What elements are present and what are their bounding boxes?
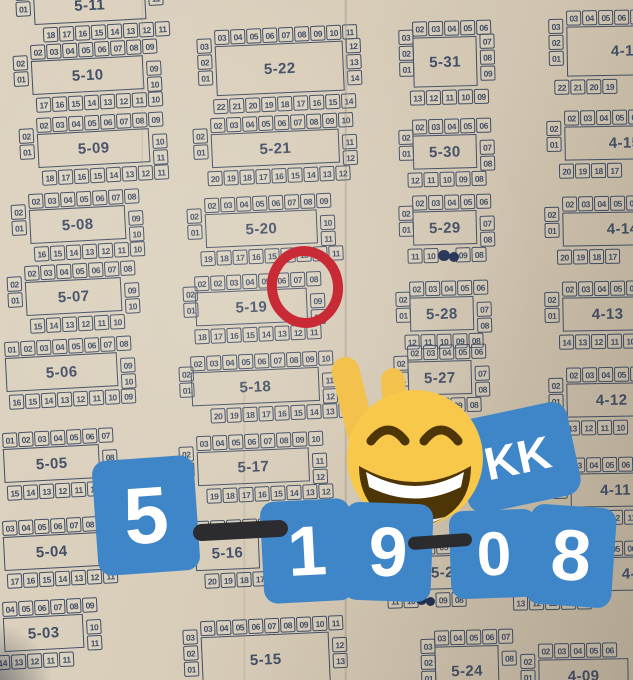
seat-cell: 12 (27, 653, 43, 669)
seat-cell: 12 (73, 391, 89, 407)
seat-cell: 10 (623, 333, 633, 348)
seat-cell: 18 (194, 329, 210, 345)
seat-block-outline: 5-10 (31, 55, 145, 95)
seat-cell: 08 (280, 617, 296, 633)
seat-block-outline: 4-15 (564, 125, 633, 161)
seat-cell: 08 (66, 598, 82, 614)
seat-cell: 10 (320, 215, 336, 231)
seat-cell: 05 (466, 629, 481, 644)
seat-cell: 20 (557, 250, 572, 265)
seat-cell: 14 (286, 485, 302, 501)
seat-cell: 05 (460, 118, 475, 133)
seat-block-label: 5-21 (259, 139, 291, 157)
seat-cell: 06 (476, 194, 491, 209)
seat-cell: 02 (566, 367, 581, 382)
seat-block-label: 5-03 (27, 624, 59, 643)
seat-cell: 17 (59, 26, 75, 42)
seat-cell: 01 (544, 223, 559, 238)
seat-cell: 14 (41, 392, 57, 408)
seat-cell: 16 (23, 572, 39, 588)
seat-cell: 01 (544, 308, 559, 323)
seat-cell: 09 (435, 592, 450, 607)
seat-cell: 13 (123, 23, 139, 39)
seat-cell: 03 (420, 639, 435, 654)
seat-cell: 11 (153, 149, 169, 165)
seat-block-outline: 5-04 (3, 532, 101, 571)
seat-cell: 08 (286, 352, 302, 368)
seat-block-outline: 4-13 (562, 296, 633, 332)
seat-cell: 04 (582, 10, 597, 25)
seat-cell: 08 (480, 231, 495, 246)
seat-cell: 12 (402, 398, 417, 413)
seat-block-label: 5-30 (429, 143, 461, 161)
seat-cell: 02 (210, 275, 226, 291)
seat-cell: 03 (582, 367, 597, 382)
seat-cell: 06 (624, 540, 633, 555)
seat-cell: 09 (146, 60, 162, 76)
seat-cell: 13 (302, 484, 318, 500)
seat-cell: 09 (292, 431, 308, 447)
seat-block-label: 5-20 (245, 220, 277, 238)
seat-cell: 05 (66, 429, 82, 445)
seat-block-label: 5-08 (61, 215, 93, 234)
seat-cell: 08 (294, 26, 310, 42)
seat-cell: 17 (238, 487, 254, 503)
seat-cell: 09 (296, 616, 312, 632)
seat-block-label: 5-07 (57, 287, 89, 306)
seat-cell: 14 (107, 23, 123, 39)
seat-cell: 11 (155, 21, 171, 37)
seat-cell: 19 (602, 79, 617, 94)
seat-cell: 08 (480, 155, 495, 170)
seat-cell: 08 (126, 39, 142, 55)
seat-cell: 05 (84, 115, 100, 131)
seat-block-label: 4-10 (622, 565, 633, 583)
seat-cell: 06 (471, 344, 486, 359)
pen-mark-dot (426, 597, 435, 606)
seat-cell: 12 (338, 402, 354, 418)
seat-cell: 09 (450, 397, 465, 412)
seat-cell: 10 (148, 91, 164, 107)
seat-cell: 02 (412, 119, 427, 134)
seat-cell: 11 (94, 315, 110, 331)
seat-cell: 18 (277, 96, 293, 112)
seat-cell: 05 (18, 600, 34, 616)
seat-cell: 07 (290, 272, 306, 288)
seat-cell: 03 (206, 355, 222, 371)
seat-cell: 06 (34, 600, 50, 616)
seat-cell: 09 (474, 89, 489, 104)
seat-cell: 11 (607, 334, 622, 349)
seat-block-label: 5-31 (429, 53, 461, 71)
seat-cell: 01 (15, 1, 31, 17)
seat-cell: 10 (326, 25, 342, 41)
seat-cell: 20 (204, 573, 220, 589)
seat-block-outline: 5-06 (5, 352, 119, 392)
seat-cell: 12 (335, 165, 351, 181)
seat-cell: 07 (104, 261, 120, 277)
seat-cell: 17 (293, 95, 309, 111)
seat-cell: 02 (407, 345, 422, 360)
seat-cell: 07 (480, 139, 495, 154)
seat-cell: 14 (306, 404, 322, 420)
seat-cell: 13 (274, 325, 290, 341)
seat-cell: 10 (110, 314, 126, 330)
seat-block-label: 4-15 (609, 134, 633, 152)
seat-cell: 06 (626, 280, 633, 295)
seat-cell: 05 (258, 115, 274, 131)
seat-block-outline: 5-09 (37, 128, 151, 168)
seat-cell: 13 (322, 403, 338, 419)
seat-cell: 05 (72, 263, 88, 279)
seat-cell: 13 (62, 316, 78, 332)
seat-cell: 02 (18, 431, 34, 447)
seat-cell: 02 (13, 55, 29, 71)
seat-cell: 16 (74, 168, 90, 184)
seat-cell: 18 (216, 250, 232, 266)
seat-cell: 15 (287, 167, 303, 183)
seat-cell: 05 (228, 434, 244, 450)
pen-mark-dot (449, 252, 459, 262)
seat-cell: 07 (260, 433, 276, 449)
seat-cell: 03 (34, 431, 50, 447)
seat-cell: 02 (544, 207, 559, 222)
seat-cell: 21 (229, 98, 245, 114)
seat-cell: 03 (423, 345, 438, 360)
seat-cell: 10 (125, 298, 141, 314)
seat-block-label: 5-27 (424, 369, 456, 387)
seat-cell: 02 (409, 281, 424, 296)
seat-cell: 11 (597, 420, 612, 435)
seat-cell: 20 (245, 97, 261, 113)
seat-block-label: 4-09 (568, 667, 600, 680)
seat-cell: 08 (116, 335, 132, 351)
seat-cell: 04 (570, 643, 585, 658)
seat-cell: 04 (52, 339, 68, 355)
seat-block-label: 4-14 (607, 220, 633, 238)
seat-cell: 09 (455, 171, 470, 186)
seat-cell: 04 (594, 196, 609, 211)
seat-cell: 02 (186, 208, 202, 224)
seat-cell: 08 (471, 171, 486, 186)
seat-cell: 06 (602, 642, 617, 657)
seat-cell: 04 (230, 29, 246, 45)
seat-block-outline: 5-03 (3, 614, 85, 652)
seat-block-label: 5-28 (426, 305, 458, 323)
seat-block-outline: 4-16 (566, 25, 633, 77)
seat-cell: 01 (13, 71, 29, 87)
seat-cell: 12 (407, 172, 422, 187)
seat-cell: 07 (290, 114, 306, 130)
seat-cell: 04 (50, 430, 66, 446)
seat-cell: 14 (46, 317, 62, 333)
seat-cell: 13 (82, 244, 98, 260)
seat-cell: 04 (439, 344, 454, 359)
seat-cell: 10 (318, 350, 334, 366)
seat-cell: 05 (614, 367, 629, 382)
seat-cell: 17 (58, 169, 74, 185)
seat-block-outline: 5-31 (412, 36, 477, 88)
seat-cell: 05 (586, 643, 601, 658)
seat-cell: 06 (254, 353, 270, 369)
seat-block-label: 5-19 (235, 298, 267, 316)
seat-cell: 02 (204, 198, 220, 214)
seat-cell: 01 (546, 137, 561, 152)
seat-cell: 07 (480, 215, 495, 230)
seat-cell: 15 (25, 393, 41, 409)
seat-cell: 11 (418, 398, 433, 413)
seat-cell: 02 (197, 54, 213, 70)
seat-cell: 04 (222, 354, 238, 370)
seat-cell: 15 (39, 571, 55, 587)
seat-cell: 02 (538, 643, 553, 658)
seat-cell: 14 (347, 70, 363, 86)
seat-cell: 10 (130, 241, 146, 257)
seat-block-label: 5-11 (74, 0, 106, 14)
seat-cell: 04 (212, 435, 228, 451)
seat-cell: 15 (91, 24, 107, 40)
seat-block-label: 5-17 (237, 458, 269, 476)
seat-cell: 10 (129, 226, 145, 242)
seat-cell: 02 (398, 206, 413, 221)
seat-cell: 09 (121, 388, 137, 404)
seat-cell: 03 (428, 195, 443, 210)
seat-block-label: 5-10 (71, 66, 103, 85)
seat-cell: 11 (312, 453, 328, 469)
seat-block-outline: 5-07 (25, 277, 123, 316)
seat-cell: 02 (183, 645, 199, 661)
seat-cell: 13 (333, 653, 349, 669)
seat-cell: 16 (271, 168, 287, 184)
seat-cell: 03 (226, 274, 242, 290)
seat-cell: 09 (322, 113, 338, 129)
sticker-digit-text: 5 (121, 468, 172, 563)
seat-cell: 18 (589, 249, 604, 264)
seat-cell: 05 (238, 354, 254, 370)
seat-cell: 14 (23, 484, 39, 500)
seat-cell: 03 (226, 117, 242, 133)
seat-cell: 19 (206, 488, 222, 504)
seat-cell: 10 (311, 309, 327, 325)
seat-cell: 03 (425, 281, 440, 296)
seat-cell: 07 (498, 629, 513, 644)
seat-cell: 06 (100, 114, 116, 130)
seat-cell: 04 (242, 274, 258, 290)
seat-cell: 03 (566, 10, 581, 25)
seat-block-outline: 5-20 (205, 209, 318, 248)
seat-cell: 03 (548, 19, 563, 34)
seat-cell: 13 (39, 483, 55, 499)
seat-cell: 11 (321, 231, 337, 247)
seat-cell: 09 (124, 282, 140, 298)
seat-cell: 18 (236, 572, 252, 588)
seat-block-label: 5-29 (429, 219, 461, 237)
seat-cell: 11 (624, 509, 633, 524)
seat-cell: 10 (613, 420, 628, 435)
seat-block-outline: 5-27 (407, 360, 472, 396)
seat-cell: 10 (121, 373, 137, 389)
seat-cell: 01 (549, 51, 564, 66)
seat-cell: 15 (264, 248, 280, 264)
seat-cell: 15 (270, 485, 286, 501)
seat-cell: 04 (216, 620, 232, 636)
seat-cell: 13 (122, 166, 138, 182)
seat-cell: 03 (428, 21, 443, 36)
seat-cell: 06 (628, 109, 633, 124)
seat-cell: 05 (246, 28, 262, 44)
seat-block-outline: 5-24 (434, 645, 499, 680)
seat-cell: 11 (328, 615, 344, 631)
seat-cell: 11 (407, 248, 422, 263)
seat-cell: 03 (214, 30, 230, 46)
seat-cell: 01 (4, 341, 20, 357)
seat-cell: 10 (86, 619, 102, 635)
seat-cell: 19 (226, 407, 242, 423)
seat-cell: 02 (548, 378, 563, 393)
seat-cell: 20 (586, 79, 601, 94)
seat-cell: 01 (19, 144, 35, 160)
seat-cell: 07 (66, 517, 82, 533)
seat-cell: 20 (207, 171, 223, 187)
seat-cell: 17 (605, 249, 620, 264)
sticker-digit-text: 0 (476, 518, 513, 590)
seat-cell: 11 (322, 372, 338, 388)
seat-cell: 07 (110, 40, 126, 56)
photo-seating-chart: 020304050607080902015-111118171615141312… (0, 0, 633, 680)
seat-cell: 02 (192, 128, 208, 144)
seat-cell: 21 (570, 79, 585, 94)
seat-cell: 10 (105, 389, 121, 405)
seat-block-outline: 5-22 (215, 41, 345, 97)
seat-cell: 02 (564, 110, 579, 125)
seat-cell: 03 (554, 643, 569, 658)
seat-cell: 20 (559, 164, 574, 179)
seat-cell: 15 (290, 404, 306, 420)
seat-cell: 16 (226, 327, 242, 343)
seat-cell: 08 (306, 271, 322, 287)
seat-cell: 06 (84, 337, 100, 353)
seat-cell: 04 (444, 194, 459, 209)
seat-cell: 19 (575, 163, 590, 178)
seat-cell: 05 (598, 10, 613, 25)
seat-cell: 12 (116, 93, 132, 109)
seat-block-label: 5-09 (77, 139, 109, 158)
seat-cell: 15 (30, 318, 46, 334)
seat-cell: 03 (40, 264, 56, 280)
seat-cell: 05 (610, 196, 625, 211)
seat-cell: 10 (308, 431, 324, 447)
seat-cell: 11 (423, 172, 438, 187)
seat-cell: 04 (444, 20, 459, 35)
seat-cell: 13 (575, 334, 590, 349)
seat-cell: 12 (426, 90, 441, 105)
sticker-digit-8: 8 (525, 503, 618, 609)
seat-cell: 11 (87, 635, 103, 651)
seat-cell: 14 (280, 247, 296, 263)
seat-cell: 16 (75, 25, 91, 41)
seat-block-label: 4-13 (592, 305, 624, 323)
seat-cell: 14 (0, 655, 11, 671)
seat-cell: 07 (116, 113, 132, 129)
seat-cell: 12 (98, 243, 114, 259)
seat-block-outline: 5-08 (29, 205, 127, 244)
seat-cell: 02 (562, 196, 577, 211)
seat-cell: 04 (236, 196, 252, 212)
seat-cell: 01 (193, 144, 209, 160)
seat-cell: 09 (310, 25, 326, 41)
sticker-digit-text: 8 (548, 514, 594, 599)
seat-block-label: 5-15 (250, 650, 282, 668)
seat-block-label: 5-06 (45, 363, 77, 382)
seat-cell: 03 (182, 629, 198, 645)
seat-cell: 04 (62, 43, 78, 59)
seat-cell: 10 (423, 248, 438, 263)
seat-cell: 07 (477, 301, 492, 316)
seat-cell: 01 (520, 670, 535, 680)
seat-cell: 06 (473, 280, 488, 295)
seat-cell: 06 (92, 190, 108, 206)
seat-cell: 13 (410, 90, 425, 105)
seat-cell: 09 (310, 293, 326, 309)
seat-cell: 02 (36, 117, 52, 133)
seat-cell: 04 (586, 457, 601, 472)
seat-cell: 06 (82, 428, 98, 444)
seat-cell: 03 (2, 520, 18, 536)
seat-cell: 06 (274, 272, 290, 288)
seat-cell: 09 (128, 210, 144, 226)
seat-block-outline: 5-29 (412, 210, 477, 246)
seat-cell: 12 (313, 469, 329, 485)
seat-cell: 12 (290, 325, 306, 341)
seat-cell: 07 (270, 352, 286, 368)
seat-cell: 02 (398, 130, 413, 145)
seat-block-outline: 5-15 (201, 632, 331, 680)
seat-cell: 08 (276, 432, 292, 448)
seat-cell: 06 (482, 629, 497, 644)
seat-cell: 06 (626, 195, 633, 210)
seat-cell: 06 (88, 262, 104, 278)
seat-cell: 16 (52, 96, 68, 112)
seat-cell: 03 (200, 621, 216, 637)
seat-cell: 01 (2, 432, 18, 448)
seat-cell: 14 (66, 244, 82, 260)
seat-cell: 22 (554, 80, 569, 95)
seat-cell: 05 (68, 338, 84, 354)
seat-cell: 19 (223, 170, 239, 186)
seat-cell: 07 (100, 336, 116, 352)
seat-cell: 02 (11, 204, 27, 220)
seat-cell: 06 (262, 27, 278, 43)
seat-block-label: 5-16 (211, 544, 243, 562)
seat-cell: 05 (252, 195, 268, 211)
seat-cell: 14 (258, 326, 274, 342)
seat-cell: 02 (30, 44, 46, 60)
seat-cell: 01 (198, 70, 214, 86)
seat-cell: 01 (187, 224, 203, 240)
seat-cell: 03 (220, 197, 236, 213)
seat-cell: 06 (274, 115, 290, 131)
seat-cell: 12 (323, 388, 339, 404)
seat-cell: 18 (43, 27, 59, 43)
seat-cell: 04 (444, 118, 459, 133)
seat-cell: 04 (596, 110, 611, 125)
sticker-kk-text: KK (479, 424, 555, 491)
seat-block-label: 4-11 (600, 481, 631, 499)
seat-cell: 06 (268, 195, 284, 211)
seat-cell: 15 (68, 95, 84, 111)
seat-cell: 07 (284, 194, 300, 210)
seat-cell: 04 (18, 519, 34, 535)
